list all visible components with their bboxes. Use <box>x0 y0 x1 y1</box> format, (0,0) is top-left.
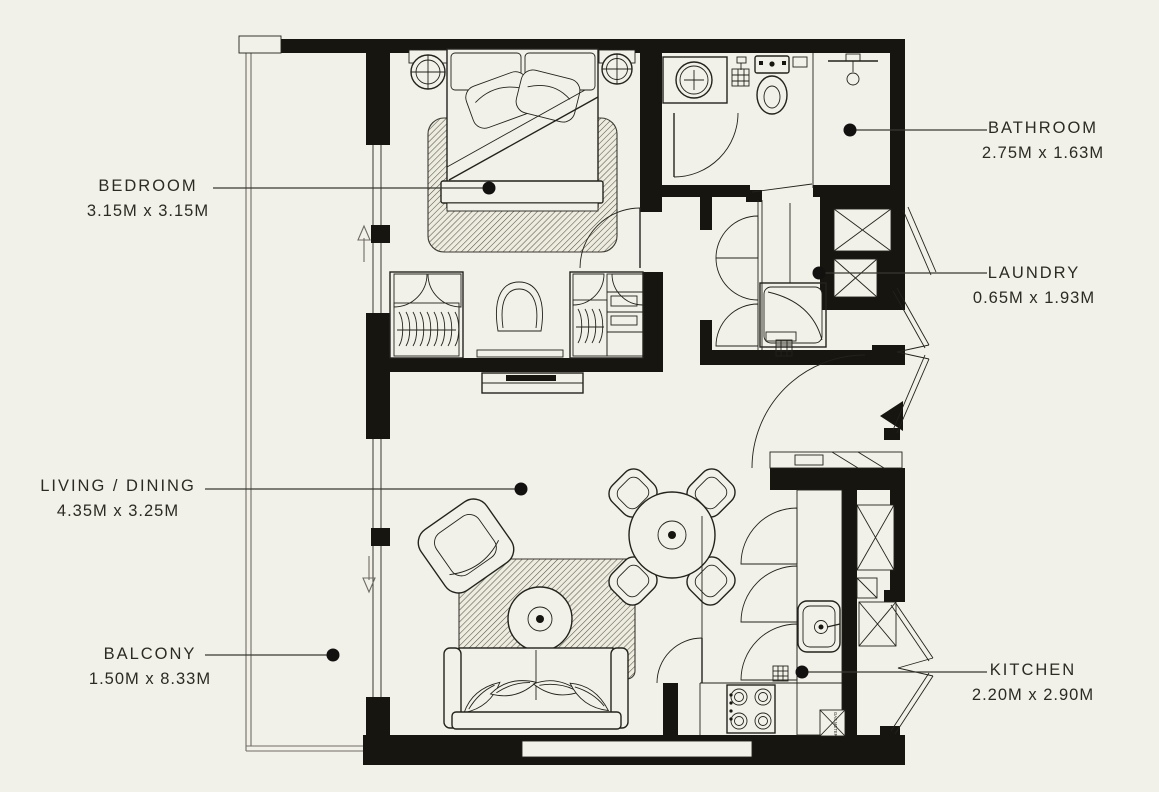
balcony-outline <box>246 41 366 751</box>
room-name: BATHROOM <box>938 116 1148 141</box>
wardrobe-left <box>390 272 463 358</box>
bathroom-faucet-icon <box>737 57 746 70</box>
label-dot-kitchen <box>796 666 809 679</box>
shower <box>752 53 878 192</box>
room-dimensions: 2.75M x 1.63M <box>938 141 1148 166</box>
room-name: LAUNDRY <box>929 261 1139 286</box>
double-bed <box>441 49 603 211</box>
bedside-lamp-right <box>599 50 635 84</box>
dining-set <box>604 464 740 610</box>
label-dot-bathroom <box>844 124 857 137</box>
dressing-chair <box>496 282 542 331</box>
room-label-bedroom: BEDROOM 3.15M x 3.15M <box>43 174 253 224</box>
room-dimensions: 2.20M x 2.90M <box>928 683 1138 708</box>
kitchen-sink <box>798 601 840 652</box>
leader-living-dining <box>205 483 528 496</box>
toilet <box>755 56 789 114</box>
tv-console <box>482 373 583 393</box>
room-name: BALCONY <box>45 642 255 667</box>
gas-stove <box>727 685 775 733</box>
room-dimensions: 1.50M x 8.33M <box>45 667 255 692</box>
room-name: KITCHEN <box>928 658 1138 683</box>
bathroom-sink <box>663 57 727 103</box>
dressing-table <box>477 350 563 357</box>
bottom-window <box>522 741 752 757</box>
room-label-living-dining: LIVING / DINING 4.35M x 3.25M <box>13 474 223 524</box>
duct-shaft-top <box>834 209 891 251</box>
duct-shaft-kitchen-top <box>857 505 894 598</box>
sliding-door-arrow-up <box>358 226 370 262</box>
floor-drain-kitchen <box>773 666 788 681</box>
kitchen-entry-door <box>891 602 933 734</box>
floor-drain-bathroom <box>732 69 749 86</box>
room-label-balcony: BALCONY 1.50M x 8.33M <box>45 642 255 692</box>
bathroom-door <box>674 113 738 177</box>
room-label-bathroom: BATHROOM 2.75M x 1.63M <box>938 116 1148 166</box>
washing-machine <box>760 283 826 347</box>
duct-shaft-kitchen-bottom <box>859 602 896 646</box>
kitchen-door <box>657 638 702 683</box>
wardrobe-right <box>570 272 643 358</box>
bedside-lamp-left <box>409 50 447 89</box>
room-label-laundry: LAUNDRY 0.65M x 1.93M <box>929 261 1139 311</box>
label-dot-bedroom <box>483 182 496 195</box>
label-dot-laundry <box>813 267 826 280</box>
balcony-cap-column <box>239 36 281 53</box>
label-dot-living-dining <box>515 483 528 496</box>
sofa <box>444 648 628 729</box>
toilet-paper-holder <box>793 57 807 67</box>
gas-meter-box: GAS METER <box>820 710 845 737</box>
room-name: LIVING / DINING <box>13 474 223 499</box>
floor-plan-page: GAS METER BEDROOM 3.15M x 3.15M BATHROOM… <box>0 0 1159 792</box>
label-dot-balcony <box>327 649 340 662</box>
room-dimensions: 0.65M x 1.93M <box>929 286 1139 311</box>
gas-meter-label: GAS METER <box>833 712 838 737</box>
room-name: BEDROOM <box>43 174 253 199</box>
entry-door-swing <box>752 355 903 468</box>
room-dimensions: 4.35M x 3.25M <box>13 499 223 524</box>
room-label-kitchen: KITCHEN 2.20M x 2.90M <box>928 658 1138 708</box>
coffee-table <box>508 587 572 651</box>
duct-shaft-mid <box>834 259 877 297</box>
room-dimensions: 3.15M x 3.15M <box>43 199 253 224</box>
